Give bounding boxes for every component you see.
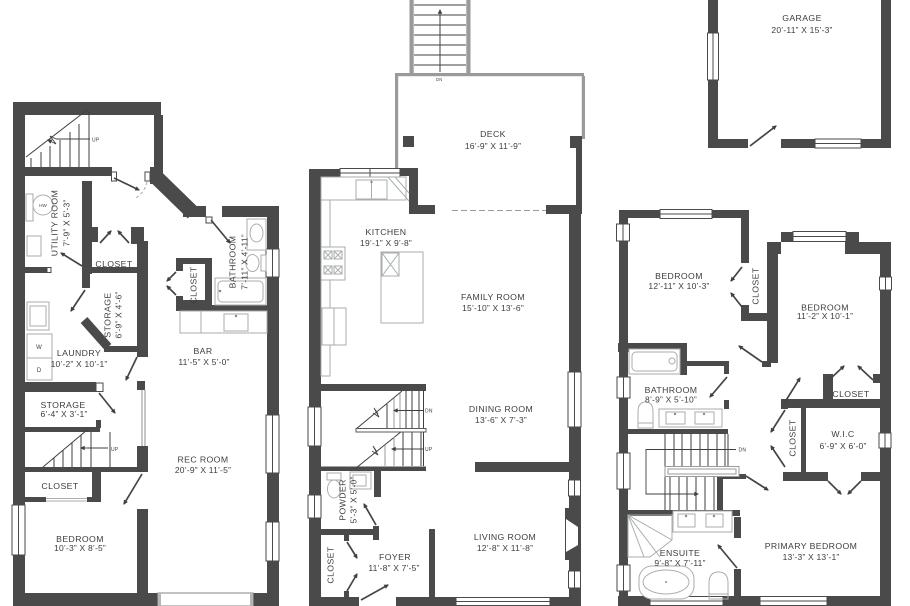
svg-text:STORAGE: STORAGE: [102, 292, 112, 337]
svg-text:16’-9” X 11’-9”: 16’-9” X 11’-9”: [465, 141, 521, 151]
svg-text:D: D: [37, 368, 42, 374]
svg-text:LIVING ROOM: LIVING ROOM: [474, 532, 536, 542]
svg-text:20’-9” X 11’-5”: 20’-9” X 11’-5”: [175, 465, 231, 475]
svg-text:HW: HW: [39, 203, 47, 208]
svg-text:10’-3” X 8’-5”: 10’-3” X 8’-5”: [54, 543, 106, 553]
svg-text:DN: DN: [739, 448, 747, 454]
svg-text:UP: UP: [111, 447, 119, 453]
svg-text:CLOSET: CLOSET: [41, 481, 78, 491]
svg-text:DECK: DECK: [480, 129, 506, 139]
svg-text:UP: UP: [425, 447, 433, 453]
svg-text:CLOSET: CLOSET: [325, 546, 335, 583]
svg-text:7’-9” X 5’-3”: 7’-9” X 5’-3”: [61, 199, 71, 246]
svg-text:W.I.C: W.I.C: [831, 429, 854, 439]
svg-text:BEDROOM: BEDROOM: [655, 271, 703, 281]
svg-text:DN: DN: [425, 409, 433, 415]
svg-text:10’-2” X 10’-1”: 10’-2” X 10’-1”: [51, 359, 108, 369]
svg-text:6’-4” X 3’-1”: 6’-4” X 3’-1”: [40, 409, 87, 419]
svg-text:FOYER: FOYER: [379, 552, 411, 562]
svg-text:BATHROOM: BATHROOM: [227, 236, 237, 289]
svg-text:KITCHEN: KITCHEN: [366, 227, 407, 237]
svg-text:FAMILY ROOM: FAMILY ROOM: [461, 292, 525, 302]
svg-text:CLOSET: CLOSET: [832, 389, 869, 399]
svg-text:20’-11” X 15’-3”: 20’-11” X 15’-3”: [771, 25, 832, 35]
svg-text:11’-5” X 5’-0”: 11’-5” X 5’-0”: [178, 357, 229, 367]
svg-text:ENSUITE: ENSUITE: [660, 548, 700, 558]
svg-text:DINING ROOM: DINING ROOM: [469, 404, 533, 414]
svg-text:8’-9” X 5’-10”: 8’-9” X 5’-10”: [645, 395, 697, 405]
svg-text:CLOSET: CLOSET: [750, 267, 760, 304]
svg-text:19’-1” X 9’-8”: 19’-1” X 9’-8”: [360, 238, 412, 248]
svg-text:PRIMARY BEDROOM: PRIMARY BEDROOM: [765, 541, 858, 551]
svg-text:6’-9” X 4’-6”: 6’-9” X 4’-6”: [113, 291, 123, 338]
svg-text:UP: UP: [92, 138, 100, 144]
svg-text:13’-3” X 13’-1”: 13’-3” X 13’-1”: [783, 552, 840, 562]
svg-text:BAR: BAR: [193, 346, 212, 356]
svg-text:GARAGE: GARAGE: [782, 13, 822, 23]
svg-text:REC ROOM: REC ROOM: [178, 455, 229, 465]
svg-text:BATHROOM: BATHROOM: [645, 385, 698, 395]
svg-text:CLOSET: CLOSET: [95, 259, 132, 269]
svg-text:CLOSET: CLOSET: [787, 419, 797, 456]
svg-text:DN: DN: [436, 77, 442, 82]
svg-text:15’-10” X 13’-6”: 15’-10” X 13’-6”: [462, 303, 524, 313]
svg-text:5’-3” X 5’-0”: 5’-3” X 5’-0”: [348, 476, 358, 523]
svg-text:9’-8” X 7’-11”: 9’-8” X 7’-11”: [654, 558, 705, 568]
svg-text:CLOSET: CLOSET: [188, 266, 198, 303]
svg-text:11’-8” X 7’-5”: 11’-8” X 7’-5”: [368, 563, 419, 573]
svg-text:13’-6” X 7’-3”: 13’-6” X 7’-3”: [475, 415, 527, 425]
svg-text:11’-2” X 10’-1”: 11’-2” X 10’-1”: [797, 311, 853, 321]
svg-text:UTILITY ROOM: UTILITY ROOM: [49, 190, 59, 256]
svg-text:POWDER: POWDER: [337, 479, 347, 521]
svg-text:6’-9” X 6’-0”: 6’-9” X 6’-0”: [819, 441, 866, 451]
svg-text:W: W: [36, 345, 42, 351]
svg-text:12’-8” X 11’-8”: 12’-8” X 11’-8”: [477, 543, 533, 553]
svg-text:7’-11” X 4’-11”: 7’-11” X 4’-11”: [239, 234, 249, 290]
svg-text:12’-11” X 10’-3”: 12’-11” X 10’-3”: [648, 281, 709, 291]
svg-text:LAUNDRY: LAUNDRY: [57, 348, 101, 358]
